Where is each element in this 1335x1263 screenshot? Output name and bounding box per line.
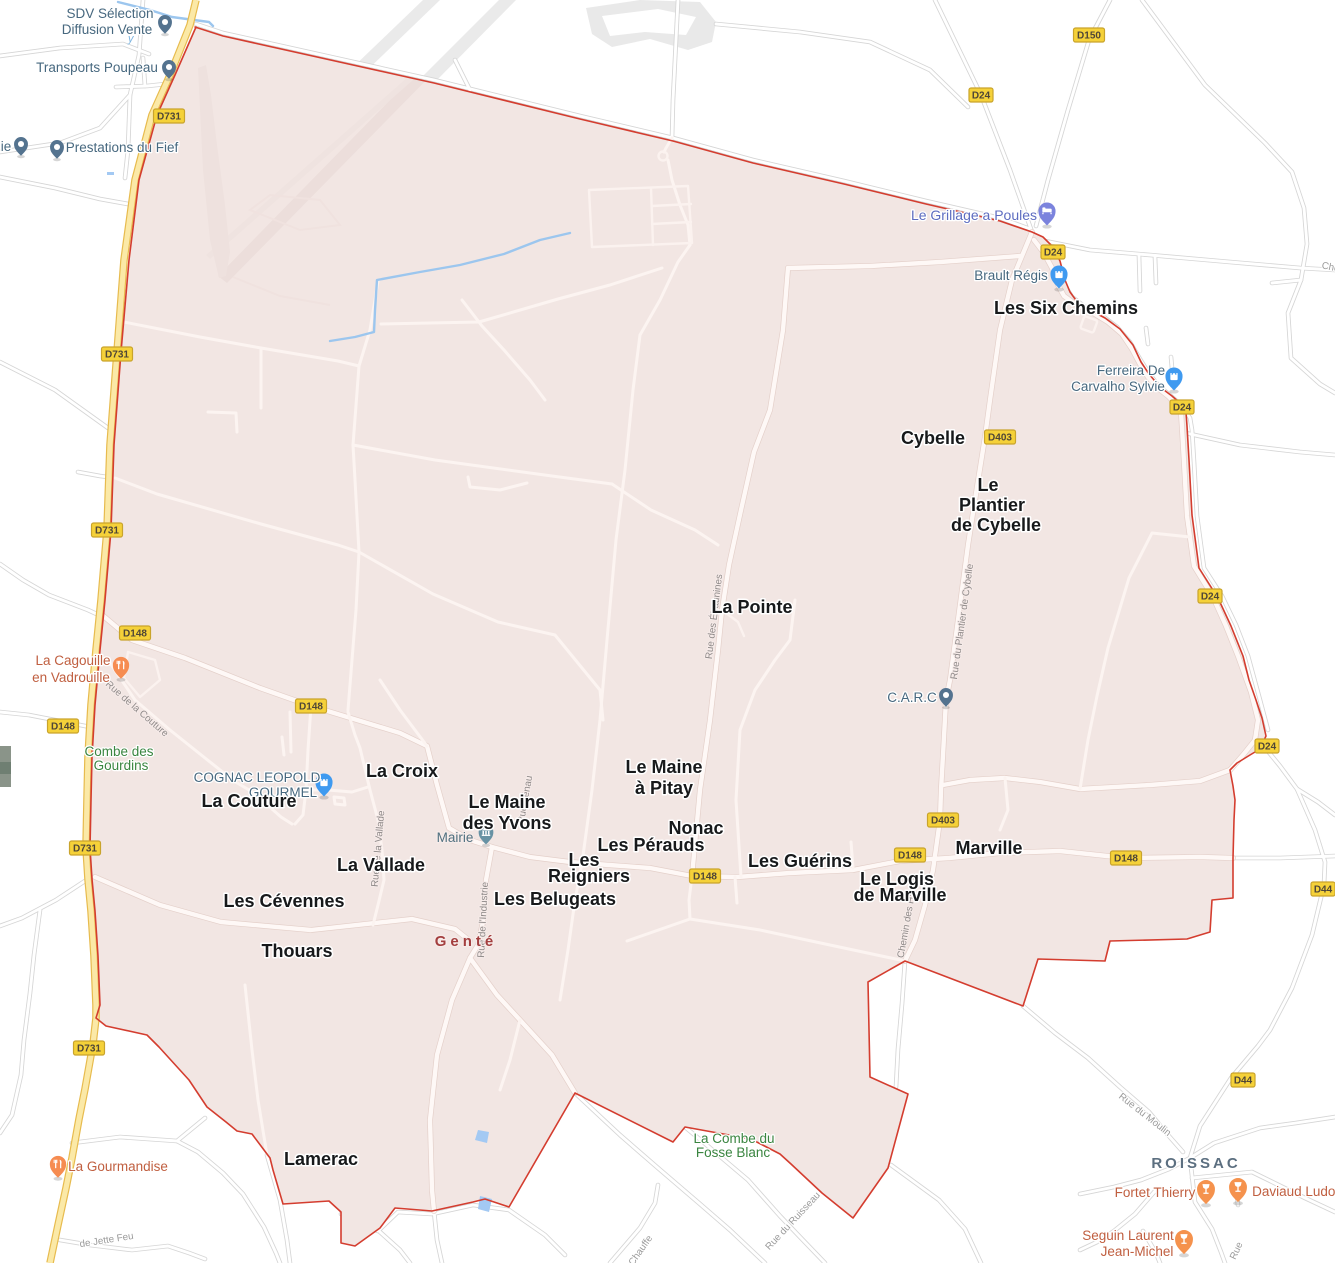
svg-text:D403: D403 <box>931 815 955 826</box>
svg-text:de Marville: de Marville <box>853 885 946 905</box>
svg-text:D731: D731 <box>95 525 119 536</box>
svg-text:Prestations du Fief: Prestations du Fief <box>66 140 179 155</box>
svg-text:D403: D403 <box>988 432 1012 443</box>
svg-text:D150: D150 <box>1077 30 1101 41</box>
svg-text:D148: D148 <box>51 721 75 732</box>
svg-text:Le: Le <box>977 475 998 495</box>
svg-text:Seguin Laurent: Seguin Laurent <box>1082 1228 1174 1243</box>
svg-text:Plantier: Plantier <box>959 495 1025 515</box>
svg-text:D148: D148 <box>693 871 717 882</box>
svg-text:Ferreira De: Ferreira De <box>1097 363 1165 378</box>
svg-text:ROISSAC: ROISSAC <box>1151 1155 1240 1172</box>
svg-text:Combe des: Combe des <box>84 744 153 759</box>
svg-text:La Combe du: La Combe du <box>693 1131 774 1146</box>
svg-text:Le Maine: Le Maine <box>468 792 545 812</box>
svg-text:Les Guérins: Les Guérins <box>748 851 852 871</box>
svg-text:Reigniers: Reigniers <box>548 866 630 886</box>
svg-text:Les Cévennes: Les Cévennes <box>223 891 344 911</box>
svg-text:D731: D731 <box>73 843 97 854</box>
svg-text:SDV Sélection: SDV Sélection <box>66 6 153 21</box>
svg-text:des Yvons: des Yvons <box>463 813 552 833</box>
svg-text:Le Grillage a Poules: Le Grillage a Poules <box>911 207 1037 223</box>
svg-text:D148: D148 <box>123 628 147 639</box>
svg-text:Diffusion Vente: Diffusion Vente <box>62 22 153 37</box>
svg-text:ie: ie <box>1 139 12 154</box>
svg-text:C.A.R.C: C.A.R.C <box>887 690 937 705</box>
svg-text:Marville: Marville <box>955 838 1022 858</box>
svg-text:D24: D24 <box>1044 247 1063 258</box>
svg-text:D731: D731 <box>105 349 129 360</box>
svg-text:Fortet Thierry: Fortet Thierry <box>1115 1185 1196 1200</box>
svg-text:en Vadrouille: en Vadrouille <box>32 670 110 685</box>
svg-text:D731: D731 <box>77 1043 101 1054</box>
svg-text:D44: D44 <box>1314 884 1333 895</box>
svg-text:D24: D24 <box>1201 591 1220 602</box>
svg-text:D148: D148 <box>1114 853 1138 864</box>
svg-text:Brault Régis: Brault Régis <box>974 268 1048 283</box>
svg-text:La Gourmandise: La Gourmandise <box>68 1159 168 1174</box>
svg-text:de Cybelle: de Cybelle <box>951 515 1041 535</box>
svg-text:à Pitay: à Pitay <box>635 778 693 798</box>
svg-text:D24: D24 <box>1173 402 1192 413</box>
svg-text:La Pointe: La Pointe <box>711 597 792 617</box>
svg-text:Jean-Michel: Jean-Michel <box>1101 1244 1174 1259</box>
svg-text:Les Belugeats: Les Belugeats <box>494 889 616 909</box>
svg-text:Carvalho Sylvie: Carvalho Sylvie <box>1071 379 1165 394</box>
svg-text:Les Pérauds: Les Pérauds <box>597 835 704 855</box>
svg-text:La Vallade: La Vallade <box>337 855 425 875</box>
svg-text:D44: D44 <box>1234 1075 1253 1086</box>
svg-text:Fosse Blanc: Fosse Blanc <box>696 1145 771 1160</box>
svg-text:Genté: Genté <box>435 933 498 950</box>
svg-text:D24: D24 <box>972 90 991 101</box>
svg-text:Les Six Chemins: Les Six Chemins <box>994 298 1138 318</box>
svg-text:Lamerac: Lamerac <box>284 1149 358 1169</box>
svg-text:D148: D148 <box>299 701 323 712</box>
svg-text:Cybelle: Cybelle <box>901 428 965 448</box>
svg-text:La Cagouille: La Cagouille <box>35 653 110 668</box>
svg-text:D24: D24 <box>1258 741 1277 752</box>
svg-text:La Croix: La Croix <box>366 761 438 781</box>
svg-text:Thouars: Thouars <box>261 941 332 961</box>
svg-text:Gourdins: Gourdins <box>94 758 149 773</box>
svg-text:D731: D731 <box>157 111 181 122</box>
svg-text:Transports Poupeau: Transports Poupeau <box>36 60 158 75</box>
svg-text:La Couture: La Couture <box>201 791 296 811</box>
svg-text:Le Maine: Le Maine <box>625 757 702 777</box>
svg-text:Daviaud Ludovic: Daviaud Ludovic <box>1252 1184 1335 1199</box>
svg-text:COGNAC LEOPOLD: COGNAC LEOPOLD <box>194 770 321 785</box>
svg-text:D148: D148 <box>898 850 922 861</box>
